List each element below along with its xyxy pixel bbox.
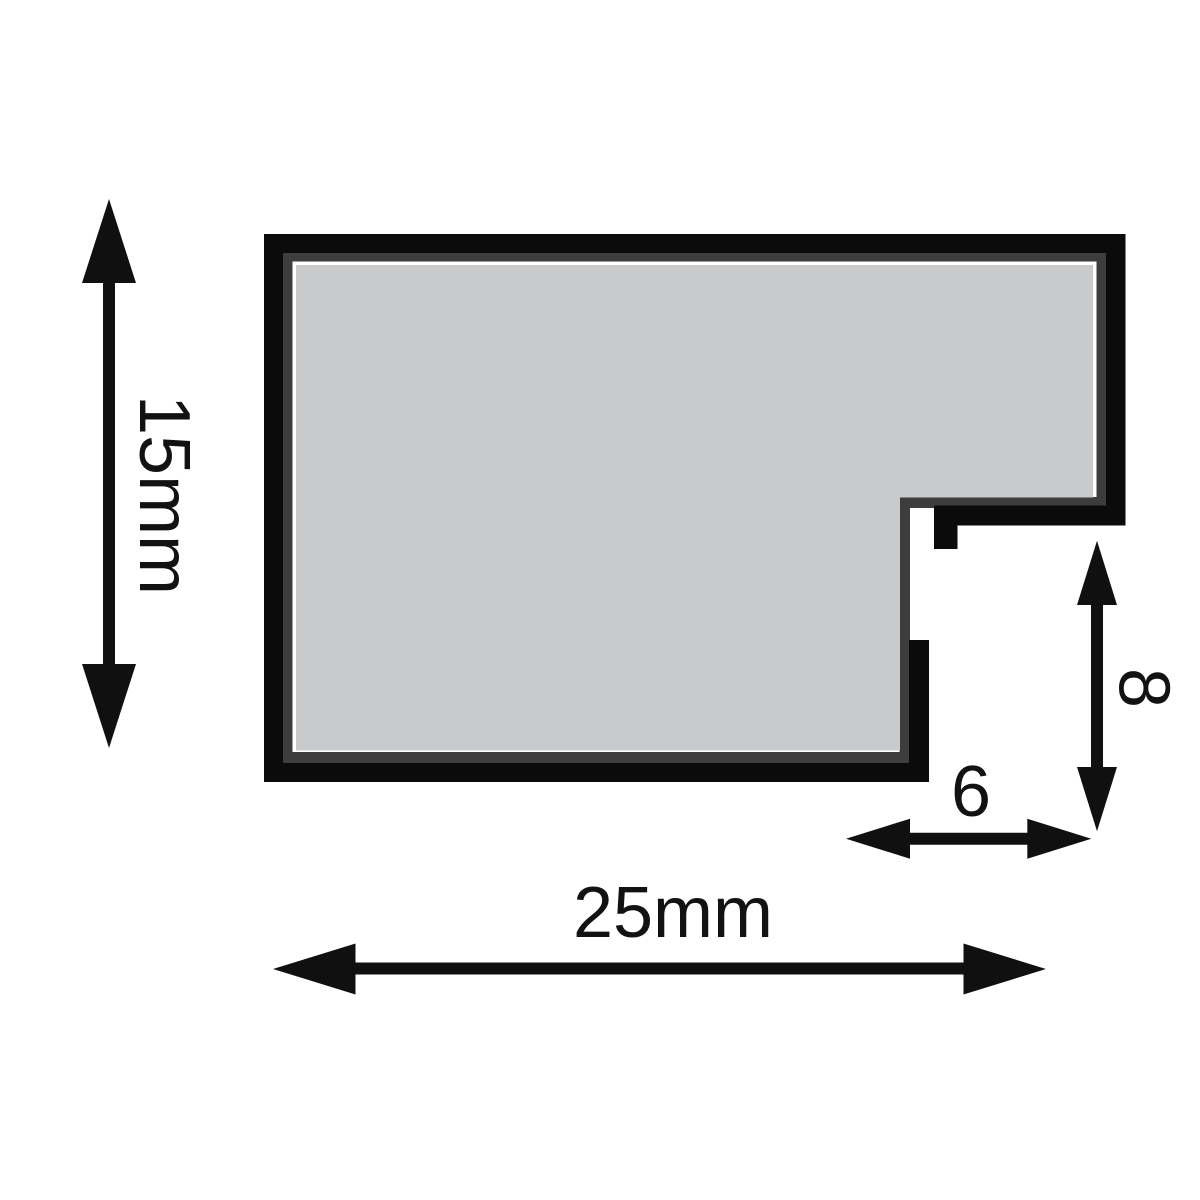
svg-text:6: 6 xyxy=(951,752,991,832)
svg-text:8: 8 xyxy=(1104,668,1184,708)
svg-text:15mm: 15mm xyxy=(124,395,204,595)
svg-text:25mm: 25mm xyxy=(573,873,773,953)
